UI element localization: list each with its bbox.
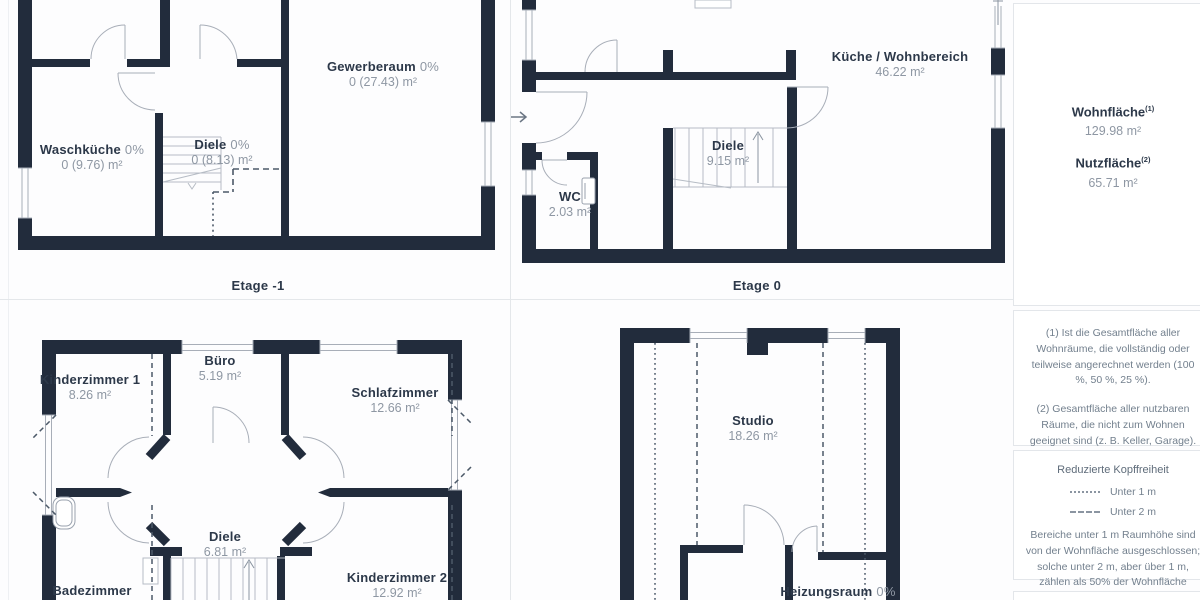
nutzflaeche-label: Nutzfläche [1076, 156, 1142, 171]
room-area: 5.19 m² [199, 369, 241, 385]
nutzflaeche-value: 65.71 m² [1014, 176, 1200, 190]
wohnflaeche-label: Wohnfläche [1072, 104, 1145, 119]
room-percent: 0% [876, 584, 895, 599]
floor-caption-etage-minus-1: Etage -1 [232, 278, 285, 293]
room-area: 18.26 m² [728, 429, 777, 445]
room-name: Schlafzimmer [352, 385, 439, 400]
room-area: 0 (9.76) m² [40, 158, 144, 174]
nutzflaeche-footnote-marker: (2) [1141, 155, 1150, 164]
room-area: 46.22 m² [832, 65, 968, 81]
room-name: Waschküche [40, 142, 121, 157]
room-area: 0 (8.13) m² [191, 153, 252, 169]
room-name: Kinderzimmer 2 [347, 570, 447, 585]
nutzflaeche-heading: Nutzfläche(2) [1014, 155, 1200, 170]
footnotes-card: (1) Ist die Gesamtfläche aller Wohnräume… [1013, 310, 1200, 446]
room-label-wc: WC 2.03 m² [549, 189, 591, 220]
legend-label-under-2m: Unter 2 m [1110, 506, 1156, 518]
room-label-schlafzimmer: Schlafzimmer 12.66 m² [352, 385, 439, 416]
floorplan-page: Waschküche0% 0 (9.76) m² Diele0% 0 (8.13… [0, 0, 1200, 600]
room-label-kueche-wohnbereich: Küche / Wohnbereich 46.22 m² [832, 49, 968, 80]
room-area: 6.81 m² [204, 545, 246, 561]
floorplan-panel-etage-0 [510, 0, 1010, 300]
footnote-2: (2) Gesamtfläche aller nutzbaren Räume, … [1027, 402, 1199, 449]
room-label-diele-eg: Diele 9.15 m² [707, 138, 749, 169]
legend-description: Bereiche unter 1 m Raumhöhe sind von der… [1024, 528, 1200, 591]
room-label-heizungsraum: Heizungsraum0% [780, 584, 895, 600]
room-label-kinderzimmer-1: Kinderzimmer 1 8.26 m² [40, 372, 140, 403]
room-name: Diele [712, 138, 744, 153]
doors [108, 407, 344, 543]
area-summary-card: Wohnfläche(1) 129.98 m² Nutzfläche(2) 65… [1013, 3, 1200, 306]
room-label-buero: Büro 5.19 m² [199, 353, 241, 384]
walls [620, 328, 900, 600]
room-name: Kinderzimmer 1 [40, 372, 140, 387]
room-percent: 0% [420, 59, 439, 74]
stairs [171, 558, 285, 600]
panel-border-left [8, 0, 9, 600]
room-percent: 0% [125, 142, 144, 157]
room-name: Diele [209, 529, 241, 544]
room-area: 12.92 m² [347, 586, 447, 600]
room-label-diele-og: Diele 6.81 m² [204, 529, 246, 560]
headroom-legend-card: Reduzierte Kopffreiheit Unter 1 m Unter … [1013, 450, 1200, 580]
room-area: 0 (27.43) m² [327, 75, 439, 91]
wohnflaeche-value: 129.98 m² [1014, 124, 1200, 138]
panel-divider-horizontal [0, 299, 1013, 300]
room-name: Büro [204, 353, 235, 368]
floorplan-drawing-etage-2 [510, 300, 1010, 600]
diagonal-walls [149, 437, 303, 543]
room-name: Gewerberaum [327, 59, 416, 74]
room-name: WC [559, 189, 581, 204]
panel-divider-vertical [510, 0, 511, 600]
room-label-diele-kg: Diele0% 0 (8.13) m² [191, 137, 252, 168]
floorplan-drawing-etage-0 [510, 0, 1010, 300]
room-name: Badezimmer [52, 583, 131, 598]
room-area: 8.26 m² [40, 388, 140, 404]
floorplan-panel-etage-1 [0, 300, 510, 600]
dotted-line-icon [1070, 491, 1100, 493]
floorplan-panel-etage-2 [510, 300, 1010, 600]
wohnflaeche-heading: Wohnfläche(1) [1014, 104, 1200, 119]
doors [744, 505, 817, 552]
walls [522, 0, 1005, 263]
floor-caption-etage-0: Etage 0 [733, 278, 781, 293]
legend-label-under-1m: Unter 1 m [1110, 486, 1156, 498]
room-name: Heizungsraum [780, 584, 872, 599]
room-label-waschkueche: Waschküche0% 0 (9.76) m² [40, 142, 144, 173]
room-area: 2.03 m² [549, 205, 591, 221]
room-percent: 0% [230, 137, 249, 152]
room-label-kinderzimmer-2: Kinderzimmer 2 12.92 m² [347, 570, 447, 600]
legend-title: Reduzierte Kopffreiheit [1024, 464, 1200, 476]
doors [536, 40, 828, 185]
fixtures [582, 0, 731, 204]
room-label-studio: Studio 18.26 m² [728, 413, 777, 444]
floorplan-drawing-etage-1 [0, 300, 510, 600]
room-area: 12.66 m² [352, 401, 439, 417]
headroom-dashes [213, 169, 281, 236]
footnote-1: (1) Ist die Gesamtfläche aller Wohnräume… [1027, 326, 1199, 389]
entrance-arrow-icon [511, 112, 526, 122]
legend-row-under-2m: Unter 2 m [1024, 506, 1200, 518]
room-name: Diele [194, 137, 226, 152]
room-label-gewerberaum: Gewerberaum0% 0 (27.43) m² [327, 59, 439, 90]
wohnflaeche-footnote-marker: (1) [1145, 104, 1154, 113]
room-label-badezimmer: Badezimmer [52, 583, 131, 599]
walls [18, 0, 495, 250]
legend-row-under-1m: Unter 1 m [1024, 486, 1200, 498]
room-name: Studio [732, 413, 774, 428]
room-name: Küche / Wohnbereich [832, 49, 968, 64]
fixtures [53, 497, 158, 584]
dashed-line-icon [1070, 511, 1100, 513]
room-area: 9.15 m² [707, 154, 749, 170]
cropped-bottom-card [1013, 591, 1200, 600]
